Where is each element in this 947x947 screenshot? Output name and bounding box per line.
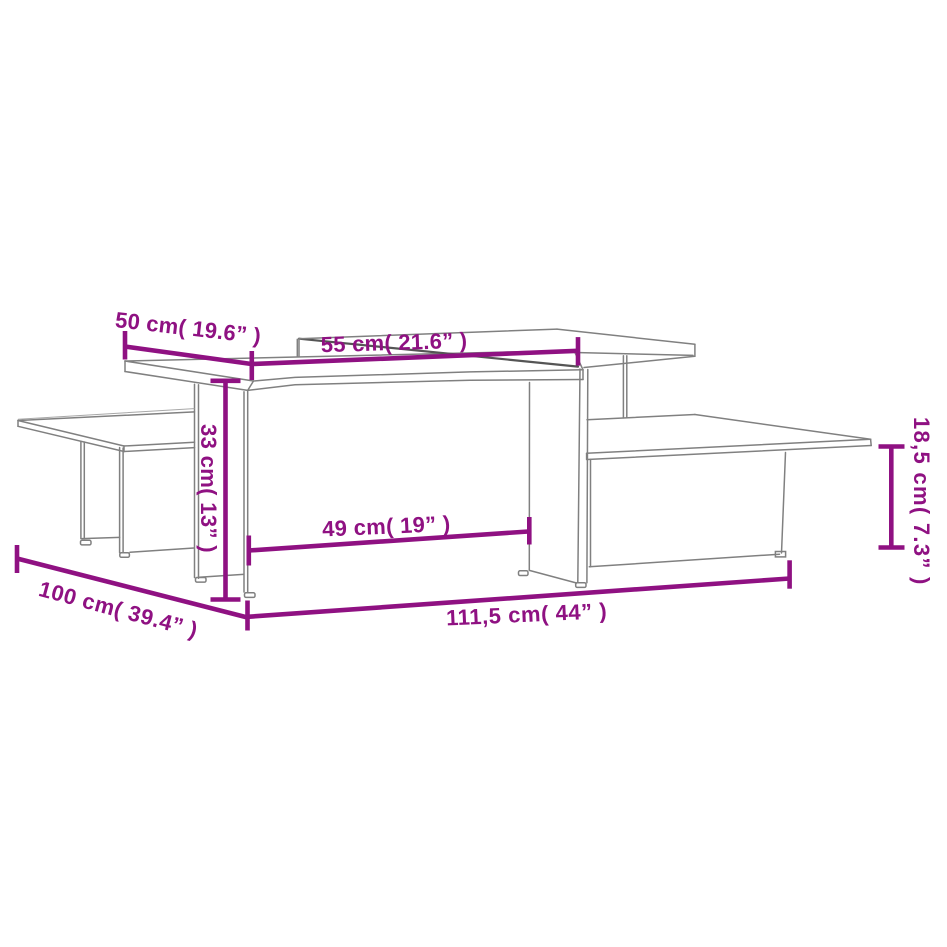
- svg-text:55 cm( 21.6” ): 55 cm( 21.6” ): [320, 328, 467, 358]
- svg-text:33 cm( 13” ): 33 cm( 13” ): [196, 424, 221, 553]
- svg-text:18,5 cm( 7.3” ): 18,5 cm( 7.3” ): [909, 417, 934, 586]
